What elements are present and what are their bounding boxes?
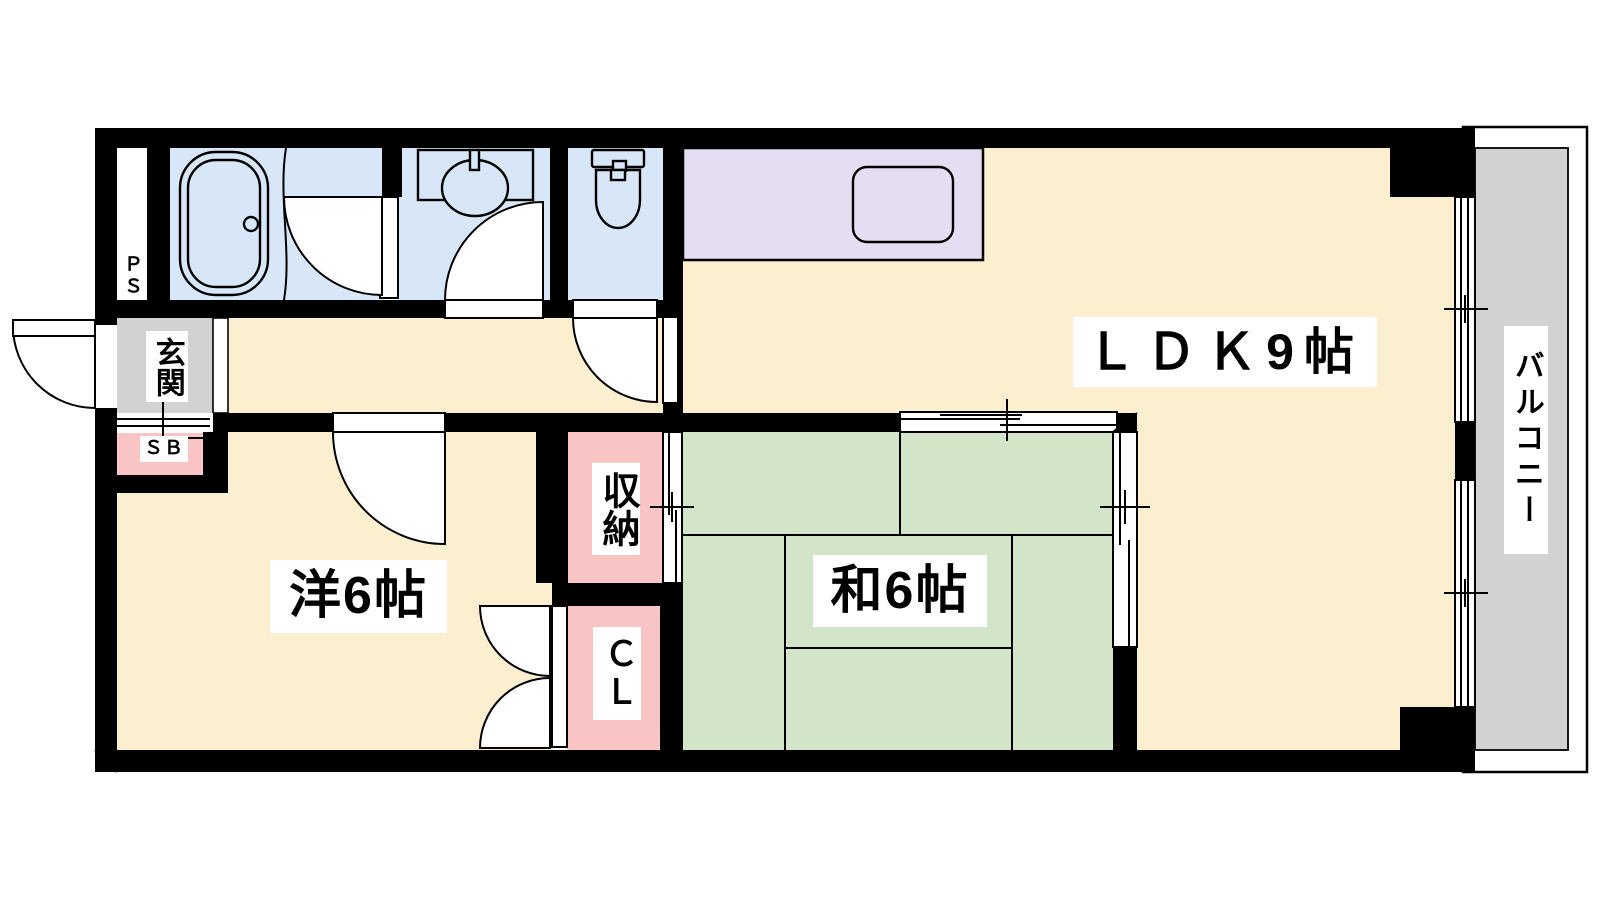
wall-hall-west-b (445, 413, 900, 432)
entrance-step-area (117, 413, 213, 432)
toilet-door-leaf (573, 300, 657, 318)
label-balcony: バルコニー (1504, 326, 1548, 554)
label-ldk: ＬＤＫ9帖 (1073, 317, 1377, 387)
label-closet: ＣＬ (593, 627, 641, 720)
wall-left-lower (95, 408, 117, 772)
entrance-step-strip (213, 318, 228, 413)
wall-japanese-right (1113, 647, 1137, 750)
basin-faucet (470, 150, 479, 170)
label-entrance: 玄関 (146, 331, 188, 402)
entrance-doorway-gap (96, 325, 116, 408)
wall-washroom-toilet (550, 148, 568, 300)
washroom-doorway (445, 300, 543, 318)
western-door-leaf (333, 413, 445, 432)
wall-closet-japanese (660, 583, 683, 750)
label-japanese: 和6帖 (813, 555, 987, 627)
floorplan-drawing (0, 0, 1600, 900)
toilet-seat-notch (611, 170, 625, 180)
wall-right-seg1 (1455, 128, 1475, 197)
wall-wetrooms-bottom-b (543, 300, 573, 318)
label-western: 洋6帖 (270, 560, 447, 633)
entrance-door-leaf (13, 320, 95, 336)
closet-doorway (552, 606, 567, 747)
wall-ps-right (147, 148, 170, 300)
slider-japanese-right (1113, 432, 1137, 647)
wall-bath-washroom (382, 148, 402, 197)
wall-wetrooms-bottom-a (117, 300, 445, 318)
wall-top (95, 128, 1475, 148)
wall-shoebox-bottom (117, 475, 228, 493)
label-pipe-space: ＰＳ (117, 243, 145, 309)
wall-western-storage (536, 432, 568, 583)
floorplan-page: ＬＤＫ9帖 洋6帖 和6帖 収納 ＣＬ 玄関 ＳＢ ＰＳ バルコニー (0, 0, 1600, 900)
entrance-door-swing (13, 326, 95, 408)
hallway-ldk-opening (663, 317, 678, 403)
wall-right-seg3 (1455, 707, 1475, 772)
wall-left-upper (95, 128, 117, 325)
wall-wetrooms-bottom-c (657, 300, 683, 318)
wall-storage-closet (552, 583, 662, 606)
wall-hall-west-a (228, 413, 333, 432)
label-shoebox: ＳＢ (140, 436, 188, 462)
wall-bottom (95, 750, 1475, 772)
label-storage: 収納 (592, 463, 640, 555)
wall-right-seg2 (1455, 422, 1475, 480)
